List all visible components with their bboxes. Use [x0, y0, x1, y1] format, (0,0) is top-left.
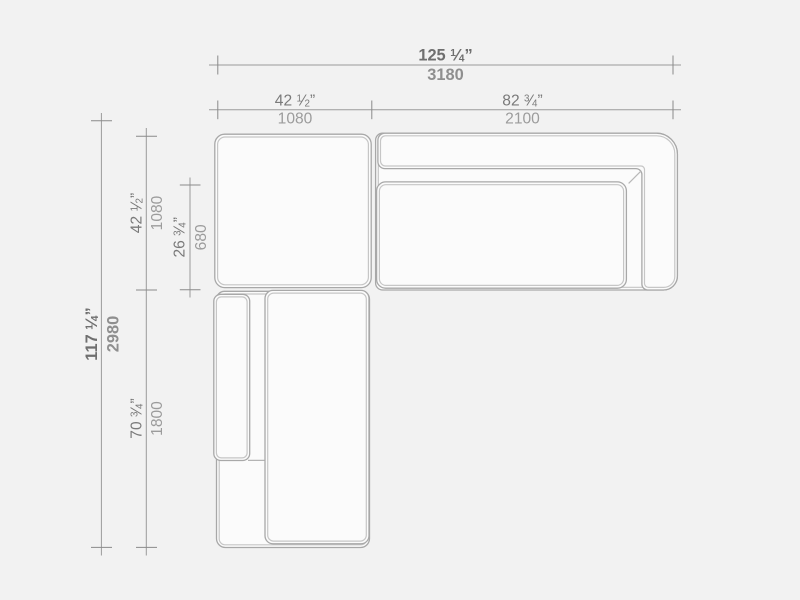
svg-text:2100: 2100: [505, 111, 540, 128]
svg-text:42 1⁄2”: 42 1⁄2”: [275, 93, 315, 110]
svg-text:125 1⁄4”: 125 1⁄4”: [418, 47, 472, 65]
svg-text:1080: 1080: [149, 195, 166, 230]
svg-text:680: 680: [193, 224, 210, 250]
svg-text:1800: 1800: [149, 401, 166, 436]
svg-text:2980: 2980: [104, 316, 122, 352]
svg-text:1080: 1080: [278, 111, 313, 128]
svg-text:117 1⁄4”: 117 1⁄4”: [83, 307, 101, 360]
svg-text:82 3⁄4”: 82 3⁄4”: [502, 93, 542, 110]
svg-text:42 1⁄2”: 42 1⁄2”: [129, 193, 146, 233]
svg-text:70 3⁄4”: 70 3⁄4”: [129, 398, 146, 438]
svg-text:26 3⁄4”: 26 3⁄4”: [172, 217, 189, 257]
svg-text:3180: 3180: [427, 66, 463, 84]
